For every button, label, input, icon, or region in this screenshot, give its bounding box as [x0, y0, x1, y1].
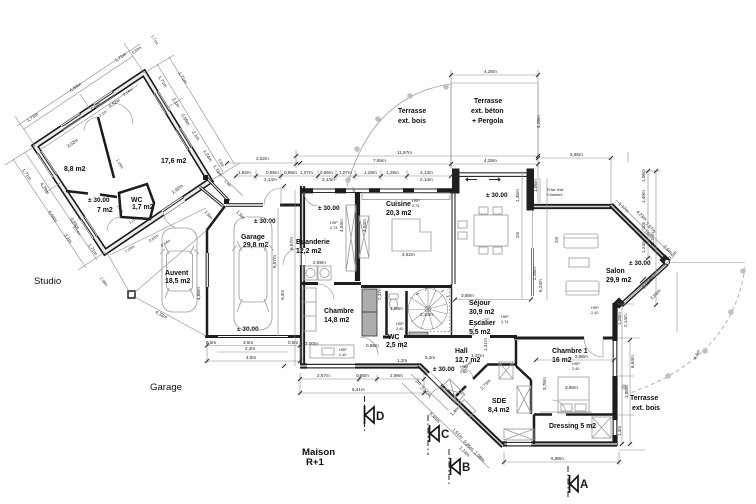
svg-text:4,53m: 4,53m	[339, 219, 344, 232]
svg-text:± 30.00: ± 30.00	[88, 197, 110, 204]
svg-text:7,69m: 7,69m	[373, 158, 386, 163]
svg-text:1,29m: 1,29m	[386, 170, 399, 175]
svg-text:16 m2: 16 m2	[552, 357, 572, 364]
svg-text:1,7 m2: 1,7 m2	[132, 204, 154, 211]
svg-text:4,53m: 4,53m	[362, 219, 367, 232]
svg-text:1,2m: 1,2m	[397, 358, 407, 363]
svg-text:2,14m: 2,14m	[420, 177, 433, 182]
svg-text:2,26m: 2,26m	[532, 267, 537, 280]
svg-text:4,28m: 4,28m	[484, 69, 497, 74]
svg-text:4,66m: 4,66m	[196, 287, 201, 300]
svg-text:1,31m: 1,31m	[483, 338, 488, 351]
svg-text:HSP: HSP	[339, 348, 347, 352]
svg-text:1,28m: 1,28m	[617, 312, 622, 325]
svg-text:4,52m: 4,52m	[402, 252, 415, 257]
svg-text:3,88m: 3,88m	[461, 293, 474, 298]
svg-text:2,57m: 2,57m	[317, 373, 330, 378]
svg-text:C: C	[441, 429, 449, 441]
svg-text:AF: AF	[352, 187, 356, 192]
svg-text:3,85m: 3,85m	[624, 385, 629, 398]
svg-text:2,37m: 2,37m	[377, 287, 382, 300]
svg-text:± 30.00: ± 30.00	[237, 326, 259, 333]
svg-text:6,41m: 6,41m	[352, 387, 365, 392]
svg-text:Chambre: Chambre	[547, 193, 563, 197]
svg-text:1,06m: 1,06m	[641, 169, 646, 182]
svg-text:A: A	[580, 479, 588, 491]
svg-text:ext. bois: ext. bois	[398, 118, 426, 125]
svg-text:1,28m: 1,28m	[364, 170, 377, 175]
svg-text:6,57m: 6,57m	[272, 255, 277, 268]
svg-text:0,85m: 0,85m	[356, 373, 369, 378]
svg-text:3,76m: 3,76m	[542, 377, 547, 390]
svg-text:0,86m: 0,86m	[366, 343, 379, 348]
svg-text:30,9 m2: 30,9 m2	[469, 309, 494, 316]
svg-text:0,85m: 0,85m	[320, 170, 333, 175]
svg-text:0,85m: 0,85m	[266, 170, 279, 175]
svg-text:20,3 m2: 20,3 m2	[386, 210, 411, 217]
svg-text:Terrasse: Terrasse	[630, 395, 658, 402]
svg-text:2,14m: 2,14m	[264, 177, 277, 182]
svg-text:± 30.00: ± 30.00	[629, 260, 651, 267]
svg-text:2,99m: 2,99m	[390, 373, 403, 378]
svg-text:Studio: Studio	[34, 276, 61, 287]
svg-text:HSP: HSP	[501, 315, 509, 319]
svg-text:2,13m: 2,13m	[420, 170, 433, 175]
svg-text:Garage: Garage	[241, 234, 265, 241]
svg-text:3,00m: 3,00m	[305, 341, 318, 346]
svg-text:18,5 m2: 18,5 m2	[165, 278, 190, 285]
svg-text:2,74: 2,74	[330, 226, 337, 230]
svg-text:2,14m: 2,14m	[623, 314, 628, 327]
svg-text:2,40: 2,40	[572, 367, 579, 371]
svg-text:1,24m: 1,24m	[641, 240, 646, 253]
svg-text:2,74: 2,74	[501, 320, 508, 324]
svg-text:± 30.00: ± 30.00	[433, 366, 455, 373]
svg-text:SDE: SDE	[492, 398, 507, 405]
svg-text:1,82m: 1,82m	[238, 170, 251, 175]
svg-text:Hall: Hall	[455, 348, 468, 355]
svg-text:2,3m: 2,3m	[245, 346, 255, 351]
svg-text:14,8 m2: 14,8 m2	[324, 317, 349, 324]
svg-text:1,3m: 1,3m	[617, 426, 622, 436]
svg-text:1,06m: 1,06m	[533, 179, 538, 192]
svg-text:1,37m: 1,37m	[471, 353, 484, 358]
svg-text:HSP: HSP	[572, 362, 580, 366]
svg-text:Séjour: Séjour	[469, 300, 491, 307]
svg-text:R+1: R+1	[306, 457, 325, 468]
svg-text:+ Pergola: + Pergola	[472, 118, 503, 125]
svg-text:3,88m: 3,88m	[575, 354, 588, 359]
svg-text:± 30.00: ± 30.00	[318, 205, 340, 212]
svg-text:0,85m: 0,85m	[284, 170, 297, 175]
svg-text:3,52m: 3,52m	[256, 156, 269, 161]
svg-text:29,9 m2: 29,9 m2	[606, 277, 631, 284]
svg-text:3,86m: 3,86m	[565, 385, 578, 390]
svg-text:2m: 2m	[554, 236, 559, 243]
svg-text:Auvent: Auvent	[165, 270, 189, 277]
svg-text:Buanderie: Buanderie	[296, 239, 330, 246]
svg-text:5,2m: 5,2m	[425, 355, 435, 360]
svg-text:3,85m: 3,85m	[570, 152, 583, 157]
svg-text:4,28m: 4,28m	[536, 115, 541, 128]
svg-text:12,2 m2: 12,2 m2	[296, 248, 321, 255]
svg-text:Chambre: Chambre	[324, 308, 354, 315]
svg-text:D: D	[376, 411, 384, 423]
svg-text:Garage: Garage	[150, 382, 182, 393]
svg-text:2,40: 2,40	[339, 353, 346, 357]
svg-text:5,99m: 5,99m	[551, 456, 564, 461]
svg-text:7 m2: 7 m2	[97, 207, 113, 214]
svg-text:2,14m: 2,14m	[322, 177, 335, 182]
svg-text:± 30.00: ± 30.00	[254, 218, 276, 225]
svg-text:2,14m: 2,14m	[420, 312, 433, 317]
svg-text:HSP: HSP	[396, 322, 404, 326]
svg-text:1,49m: 1,49m	[641, 190, 646, 203]
svg-text:5,5 m2: 5,5 m2	[469, 329, 491, 336]
svg-text:Escalier: Escalier	[469, 320, 496, 327]
svg-text:3,5m: 3,5m	[243, 340, 253, 345]
svg-text:WC: WC	[388, 334, 400, 341]
svg-text:± 30.00: ± 30.00	[486, 192, 508, 199]
svg-text:2m: 2m	[515, 231, 520, 238]
svg-text:11,97m: 11,97m	[397, 150, 412, 155]
svg-text:2,74: 2,74	[412, 204, 419, 208]
svg-text:1,08m: 1,08m	[390, 306, 403, 311]
svg-text:2,40: 2,40	[591, 311, 598, 315]
svg-text:4,28m: 4,28m	[484, 158, 497, 163]
svg-text:8,8 m2: 8,8 m2	[64, 166, 86, 173]
svg-text:B: B	[462, 462, 470, 474]
svg-text:17,6 m2: 17,6 m2	[161, 158, 186, 165]
svg-text:WC: WC	[131, 197, 143, 204]
svg-text:Dressing 5 m2: Dressing 5 m2	[549, 423, 596, 430]
svg-text:1,07m: 1,07m	[300, 170, 313, 175]
svg-text:1,45m: 1,45m	[515, 189, 520, 202]
svg-text:Terrasse: Terrasse	[398, 108, 426, 115]
svg-text:ext. bois: ext. bois	[632, 405, 660, 412]
svg-text:Prise d'air: Prise d'air	[547, 188, 564, 192]
svg-text:6,64m: 6,64m	[630, 355, 635, 368]
svg-text:HSP: HSP	[591, 306, 599, 310]
svg-text:2,59m: 2,59m	[313, 260, 326, 265]
svg-text:2,40: 2,40	[396, 327, 403, 331]
svg-text:6,57m: 6,57m	[289, 237, 294, 250]
svg-text:9,4m: 9,4m	[280, 290, 285, 300]
svg-text:6,24m: 6,24m	[538, 279, 543, 292]
svg-text:Salon: Salon	[606, 268, 625, 275]
svg-text:2,5 m2: 2,5 m2	[386, 342, 408, 349]
svg-text:ext. béton: ext. béton	[471, 108, 504, 115]
svg-text:Terrasse: Terrasse	[474, 98, 502, 105]
svg-text:1,07m: 1,07m	[339, 170, 352, 175]
svg-text:HSP: HSP	[330, 221, 338, 225]
svg-text:4,5m: 4,5m	[246, 355, 256, 360]
svg-text:0,5m: 0,5m	[288, 340, 298, 345]
svg-text:8,4 m2: 8,4 m2	[488, 407, 510, 414]
svg-text:Cuisine: Cuisine	[386, 201, 411, 208]
svg-text:HSP: HSP	[412, 199, 420, 203]
